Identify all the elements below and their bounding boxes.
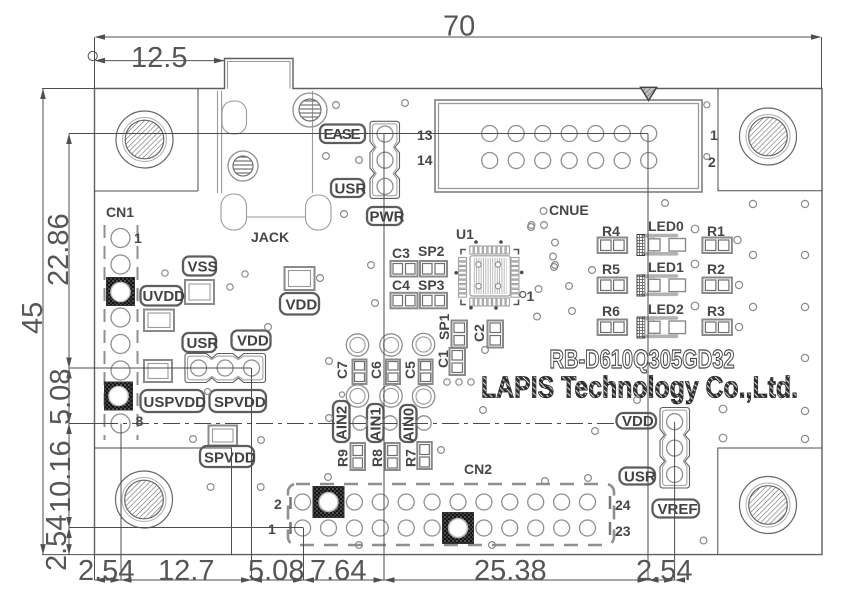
svg-text:12.5: 12.5 <box>131 42 187 74</box>
svg-text:C5: C5 <box>402 361 418 379</box>
svg-text:C2: C2 <box>471 324 487 342</box>
svg-text:R7: R7 <box>403 449 419 467</box>
svg-text:SP2: SP2 <box>418 243 445 259</box>
svg-text:VDD: VDD <box>286 297 318 314</box>
svg-text:LED0: LED0 <box>648 218 684 234</box>
svg-text:AIN0: AIN0 <box>401 408 418 442</box>
svg-text:R3: R3 <box>707 303 725 319</box>
svg-text:1: 1 <box>134 230 142 246</box>
svg-text:14: 14 <box>417 152 433 168</box>
svg-text:USR: USR <box>624 469 656 486</box>
svg-text:2: 2 <box>274 496 282 512</box>
svg-text:LED2: LED2 <box>648 301 684 317</box>
svg-text:LED1: LED1 <box>648 259 684 275</box>
svg-text:2.54: 2.54 <box>41 515 73 571</box>
svg-text:R8: R8 <box>369 449 385 467</box>
svg-text:12.7: 12.7 <box>158 555 214 587</box>
svg-text:C7: C7 <box>334 361 350 379</box>
svg-text:SP1: SP1 <box>436 313 452 340</box>
svg-text:VSS: VSS <box>188 259 218 276</box>
svg-text:R6: R6 <box>602 303 620 319</box>
svg-text:22.86: 22.86 <box>43 213 75 286</box>
svg-text:R9: R9 <box>335 449 351 467</box>
svg-text:CNUE: CNUE <box>549 202 589 218</box>
svg-text:C3: C3 <box>392 245 410 261</box>
svg-text:C6: C6 <box>368 361 384 379</box>
svg-text:8: 8 <box>136 413 144 429</box>
svg-text:SPVDD: SPVDD <box>204 450 256 467</box>
svg-text:23: 23 <box>615 523 631 539</box>
svg-text:R2: R2 <box>707 261 725 277</box>
svg-text:JACK: JACK <box>251 229 289 245</box>
svg-text:C4: C4 <box>392 277 410 293</box>
svg-text:7.64: 7.64 <box>310 555 366 587</box>
svg-text:PWR: PWR <box>370 209 405 226</box>
svg-text:5.08: 5.08 <box>248 555 304 587</box>
svg-text:10.16: 10.16 <box>45 440 77 513</box>
svg-text:UVDD: UVDD <box>143 288 186 305</box>
svg-text:VDD: VDD <box>237 333 269 350</box>
svg-text:USR: USR <box>335 181 367 198</box>
svg-text:USR: USR <box>187 335 219 352</box>
svg-text:VDD: VDD <box>622 413 654 430</box>
svg-text:R5: R5 <box>602 261 620 277</box>
svg-text:45: 45 <box>17 302 49 334</box>
svg-text:1: 1 <box>710 127 718 143</box>
svg-text:25.38: 25.38 <box>474 555 547 587</box>
svg-text:CN2: CN2 <box>464 461 492 477</box>
svg-text:AIN2: AIN2 <box>334 406 351 440</box>
svg-text:AIN1: AIN1 <box>368 407 385 441</box>
svg-text:1: 1 <box>527 288 535 304</box>
svg-text:LAPIS Technology Co.,Ltd.: LAPIS Technology Co.,Ltd. <box>481 370 798 405</box>
svg-text:2.54: 2.54 <box>78 555 134 587</box>
svg-text:2.54: 2.54 <box>636 555 692 587</box>
svg-text:SP3: SP3 <box>418 277 445 293</box>
svg-text:SPVDD: SPVDD <box>214 394 266 411</box>
svg-text:13: 13 <box>417 127 433 143</box>
svg-text:70: 70 <box>443 11 475 43</box>
svg-text:CN1: CN1 <box>106 204 134 220</box>
svg-text:USPVDD: USPVDD <box>144 394 207 411</box>
svg-text:1: 1 <box>268 521 276 537</box>
svg-text:EASE: EASE <box>324 126 361 143</box>
svg-text:VREF: VREF <box>658 501 698 518</box>
svg-text:5.08: 5.08 <box>45 369 77 425</box>
svg-text:24: 24 <box>615 497 631 513</box>
svg-text:U1: U1 <box>456 226 474 242</box>
